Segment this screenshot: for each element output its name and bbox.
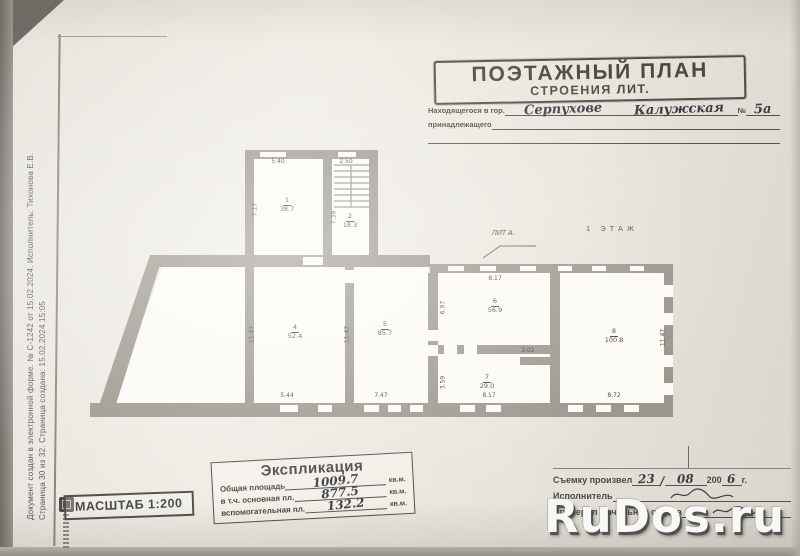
floor-plan: 5.40 2.50 7.17 7.39 11.47 11.47 8.17 6.9… xyxy=(88,145,688,425)
room-8-area: 100.8 xyxy=(605,337,624,345)
edoc-margin-text: Документ создан в электронной форме. № С… xyxy=(25,28,49,520)
room-2-area: 18.3 xyxy=(343,222,357,230)
dim-room1-top: 5.40 xyxy=(263,158,293,165)
scale-stamp: МАСШТАБ 1:200 xyxy=(64,491,194,521)
survey-year-suffix: г. xyxy=(742,475,747,486)
room-label-5: 5 85.7 xyxy=(372,321,398,338)
floor-label: 1 ЭТАЖ xyxy=(586,224,638,233)
street-value: Калужская xyxy=(634,103,724,116)
aux-area-unit: кв.м. xyxy=(390,500,407,509)
survey-year-prefix: 200 xyxy=(707,475,722,486)
dim-room4-left: 11.47 xyxy=(249,320,256,350)
scan-left-edge xyxy=(0,0,13,556)
owner-row-2 xyxy=(428,133,780,144)
dim-room6-top: 8.17 xyxy=(480,275,510,282)
room-label-4: 4 52.4 xyxy=(282,324,308,341)
lit-pointer-line xyxy=(483,246,536,258)
explication-table: Экспликация Общая площадь 1009.7 кв.м. в… xyxy=(211,452,416,524)
owner-field-2 xyxy=(428,133,780,144)
scan-bottom-edge xyxy=(0,547,800,556)
room-5-area: 85.7 xyxy=(378,330,392,338)
dim-room1-left: 7.17 xyxy=(252,195,259,225)
room-label-7: 7 29.0 xyxy=(474,374,500,391)
dim-room8-right: 11.47 xyxy=(660,323,667,353)
dim-room5-bottom: 7.47 xyxy=(366,392,396,399)
dim-room7-step: 2.02 xyxy=(513,347,543,354)
dim-room8-bottom: 8.72 xyxy=(599,392,629,399)
owner-field xyxy=(492,119,780,130)
title-stamp: ПОЭТАЖНЫЙ ПЛАН СТРОЕНИЯ ЛИТ. xyxy=(434,55,747,105)
room-label-2: 2 18.3 xyxy=(337,213,363,230)
survey-day: 23 xyxy=(638,474,655,485)
dim-room6-left: 6.97 xyxy=(440,293,447,323)
room-label-8: 8 100.8 xyxy=(599,328,629,345)
location-row: Находящегося в гор. Серпухове Калужская … xyxy=(428,105,780,116)
survey-date-row: Съемку произвел 23 / 08 200 6 г. xyxy=(553,474,791,486)
watermark: RuDos.ru xyxy=(544,490,785,543)
scan-right-edge xyxy=(790,0,800,556)
room-4-area: 52.4 xyxy=(288,333,302,341)
room-label-1: 1 38.7 xyxy=(274,197,300,214)
survey-month-field: 08 xyxy=(665,474,707,486)
located-label: Находящегося в гор. xyxy=(428,106,505,116)
number-field: 5а xyxy=(746,105,780,116)
survey-year-field: 6 xyxy=(722,474,742,486)
survey-date-sep: / xyxy=(660,476,665,486)
city-value: Серпухове xyxy=(524,104,602,117)
survey-month: 08 xyxy=(677,474,694,485)
aux-area-label: вспомогательная пл. xyxy=(221,504,305,517)
dim-room4-bottom: 5.44 xyxy=(272,392,302,399)
owner-label: принадлежащего xyxy=(428,120,492,130)
scanned-floor-plan-page: Документ создан в электронной форме. № С… xyxy=(0,0,800,556)
room-7-area: 29.0 xyxy=(480,383,494,391)
floor-plan-walls xyxy=(88,145,688,425)
dim-room4-right: 11.47 xyxy=(344,320,351,350)
survey-day-field: 23 xyxy=(632,474,660,486)
main-area-unit: кв.м. xyxy=(389,488,406,497)
form-divider-line xyxy=(688,446,689,469)
aux-area-value: 132.2 xyxy=(327,498,365,511)
city-field: Серпухове xyxy=(505,105,621,116)
number-sign: № xyxy=(738,106,746,116)
number-value: 5а xyxy=(754,105,772,116)
dim-room7-bottom: 8.17 xyxy=(474,392,504,399)
survey-produced-label: Съемку произвел xyxy=(553,475,632,486)
edoc-line2: Страница 30 из 32. Страница создана: 15.… xyxy=(37,28,49,520)
edoc-line1: Документ создан в электронной форме. № С… xyxy=(25,28,37,520)
room-label-6: 6 56.9 xyxy=(482,298,508,315)
document-edge-line xyxy=(53,34,60,546)
street-field: Калужская xyxy=(621,105,737,116)
dim-room7-left: 3.59 xyxy=(440,368,447,398)
owner-row: принадлежащего xyxy=(428,119,780,130)
document-top-edge-line xyxy=(57,36,167,37)
title-block: ПОЭТАЖНЫЙ ПЛАН СТРОЕНИЯ ЛИТ. Находящегос… xyxy=(428,58,780,144)
room-1-area: 38.7 xyxy=(280,206,294,214)
lit-label: ЛИТ А. xyxy=(492,230,515,237)
room-6-area: 56.9 xyxy=(488,307,502,315)
total-area-unit: кв.м. xyxy=(389,476,406,485)
dim-room2-top: 2.50 xyxy=(331,158,361,165)
survey-year-digit: 6 xyxy=(727,474,736,484)
